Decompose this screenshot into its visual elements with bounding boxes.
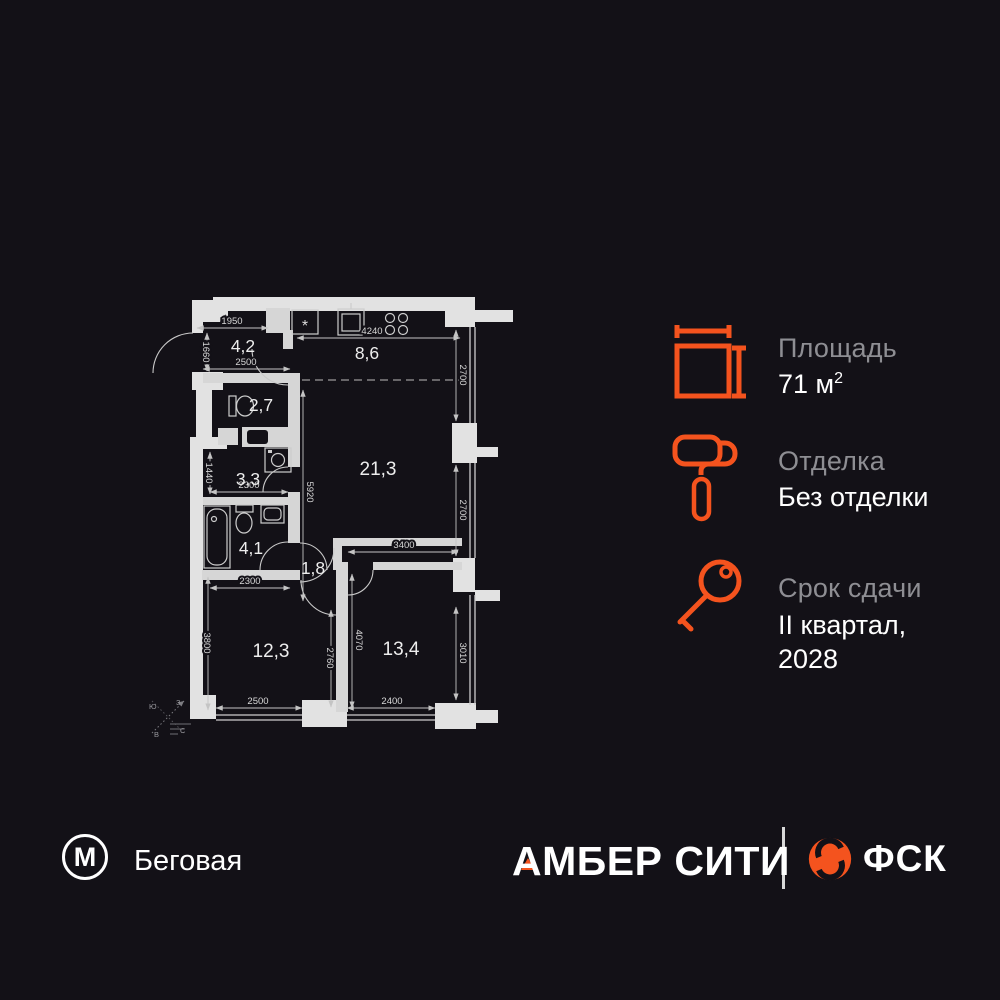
dim-bedroom2-window: 3010 xyxy=(457,642,468,663)
washing-machine-icon xyxy=(265,448,291,472)
room-label-storage: 3,3 xyxy=(236,469,260,489)
dim-bedroom-bottom: 2500 xyxy=(247,696,268,707)
floor-plan-svg: * xyxy=(140,288,516,750)
dim-living-width: 3400 xyxy=(393,540,414,551)
bathroom-toilet-icon xyxy=(236,505,253,533)
dim-kitchen-top: 4240 xyxy=(361,326,382,337)
dim-hall-top: 1950 xyxy=(221,316,242,327)
stove-icon xyxy=(386,314,408,335)
bathroom-sink-icon xyxy=(261,505,284,523)
room-label-bedroom2: 13,4 xyxy=(383,639,420,660)
dim-hall-left: 1660 xyxy=(200,341,211,362)
completion-value-line2: 2028 xyxy=(778,644,838,675)
project-logo: АМБЕР СИТИ xyxy=(512,838,790,885)
metro-icon: М xyxy=(62,834,108,880)
paint-roller-icon xyxy=(672,432,746,529)
room-label-living: 21,3 xyxy=(360,459,397,480)
completion-value-line1: II квартал, xyxy=(778,610,906,641)
compass-bottom-right: С xyxy=(180,726,186,735)
dim-mid-wall: 2760 xyxy=(324,647,335,668)
fsk-logo-icon xyxy=(807,836,853,882)
area-icon xyxy=(672,322,748,405)
compass-top-left: Ю xyxy=(149,702,157,711)
metro-station-name: Беговая xyxy=(134,845,242,878)
finishing-label: Отделка xyxy=(778,446,885,477)
room-label-bedroom: 12,3 xyxy=(253,641,290,662)
key-icon xyxy=(668,556,750,643)
dim-bedroom2-left: 4070 xyxy=(353,629,364,650)
dim-height-mid: 5920 xyxy=(304,481,315,502)
metro-letter: М xyxy=(74,842,97,873)
dim-bedroom-left: 3800 xyxy=(201,632,212,653)
bathtub-icon xyxy=(204,506,230,568)
dim-bedroom-top: 2300 xyxy=(239,576,260,587)
area-label: Площадь xyxy=(778,333,897,364)
completion-label: Срок сдачи xyxy=(778,573,922,604)
dim-hall-bottom: 2500 xyxy=(235,357,256,368)
entrance-door-arc xyxy=(153,333,193,373)
project-logo-text: АМБЕР СИТИ xyxy=(512,838,790,884)
kitchen-star: * xyxy=(302,318,308,335)
area-value: 71 м2 xyxy=(778,369,843,400)
developer-logo: ФСК xyxy=(807,836,947,882)
room-label-bathroom: 4,1 xyxy=(239,538,263,558)
room-label-wc: 2,7 xyxy=(249,395,273,415)
finishing-value: Без отделки xyxy=(778,482,928,513)
compass-icon: Ю З В С xyxy=(149,698,186,739)
floor-plan: * xyxy=(140,288,516,750)
compass-bottom-left: В xyxy=(154,730,159,739)
area-unit-sup: 2 xyxy=(834,370,843,387)
dim-kitchen-window: 2700 xyxy=(457,364,468,385)
room-label-corridor: 1,8 xyxy=(301,558,325,578)
dim-bedroom2-bottom: 2400 xyxy=(381,696,402,707)
compass-top-right: З xyxy=(176,698,181,707)
dim-storage-left: 1440 xyxy=(203,462,214,483)
developer-logo-text: ФСК xyxy=(863,838,947,880)
room-label-hallway: 4,2 xyxy=(231,336,255,356)
room-label-kitchen: 8,6 xyxy=(355,343,379,363)
dim-living-window: 2700 xyxy=(457,499,468,520)
